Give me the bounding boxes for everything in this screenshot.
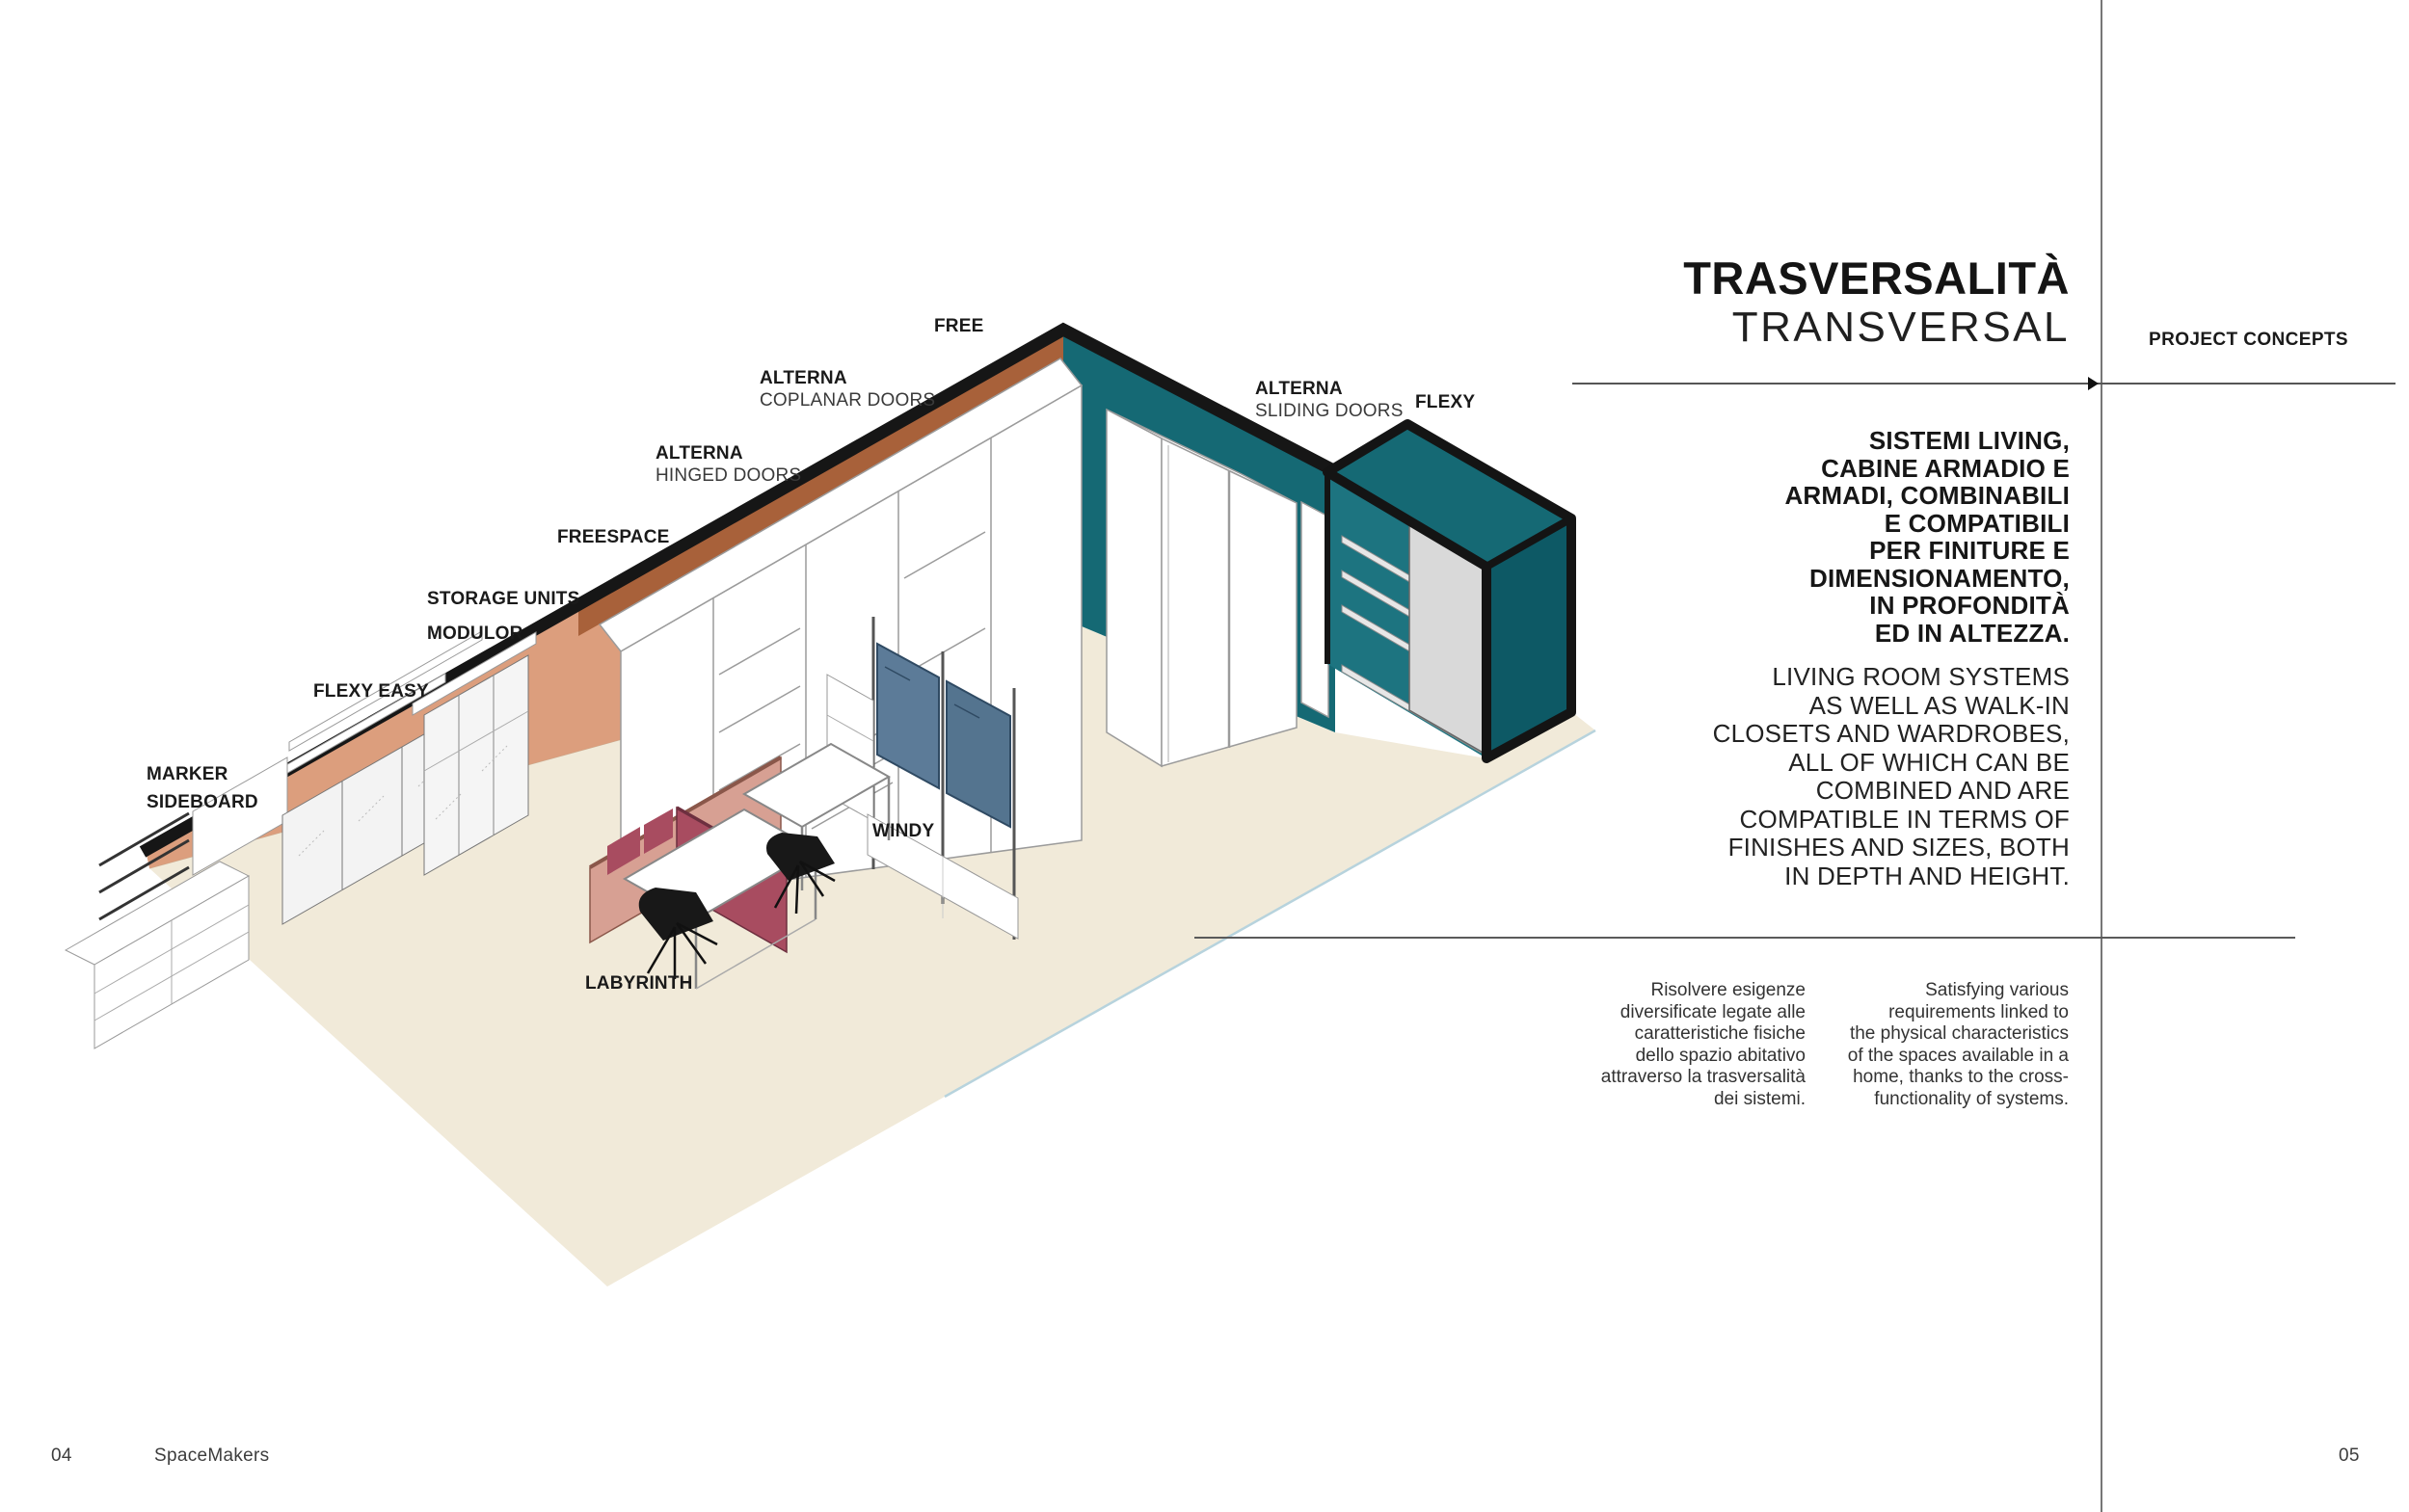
diagram-label-sideboard: SIDEBOARD [147, 791, 258, 813]
text-line: Satisfying various [1848, 980, 2069, 1002]
diagram-label-storage-units: STORAGE UNITS [427, 588, 580, 610]
text-line: DIMENSIONAMENTO, [1784, 565, 2070, 593]
catalog-spread: FREEALTERNACOPLANAR DOORSALTERNAHINGED D… [0, 0, 2409, 1512]
diagram-label-labyrinth: LABYRINTH [585, 972, 693, 995]
caption-english: Satisfying variousrequirements linked to… [1848, 980, 2069, 1110]
text-line: dello spazio abitativo [1601, 1046, 1806, 1068]
open-door-panel [1301, 502, 1328, 717]
caption-rule [1194, 937, 2295, 939]
diagram-label-name: ALTERNA [760, 367, 935, 389]
intro-italian: SISTEMI LIVING,CABINE ARMADIO EARMADI, C… [1784, 427, 2070, 647]
text-line: functionality of systems. [1848, 1089, 2069, 1111]
text-line: ARMADI, COMBINABILI [1784, 482, 2070, 510]
text-line: COMPATIBLE IN TERMS OF [1713, 806, 2070, 835]
header-rule [1572, 383, 2396, 385]
section-label: PROJECT CONCEPTS [2149, 330, 2348, 351]
caption-italian: Risolvere esigenzediversificate legate a… [1601, 980, 1806, 1110]
diagram-label-name: ALTERNA [656, 442, 801, 464]
diagram-label-alterna-sliding: ALTERNASLIDING DOORS [1255, 378, 1404, 422]
diagram-label-free: FREE [934, 315, 983, 337]
text-line: SISTEMI LIVING, [1784, 427, 2070, 455]
brand-name: SpaceMakers [154, 1446, 269, 1467]
text-line: caratteristiche fisiche [1601, 1023, 1806, 1046]
text-line: diversificate legate alle [1601, 1002, 1806, 1024]
diagram-label-name: MARKER [147, 763, 228, 785]
text-line: ED IN ALTEZZA. [1784, 620, 2070, 648]
diagram-label-alterna-coplanar: ALTERNACOPLANAR DOORS [760, 367, 935, 411]
diagram-label-name: FLEXY EASY [313, 680, 429, 703]
diagram-label-name: FREESPACE [557, 526, 670, 548]
diagram-label-flexy: FLEXY [1415, 391, 1475, 413]
diagram-label-name: STORAGE UNITS [427, 588, 580, 610]
text-line: IN PROFONDITÀ [1784, 592, 2070, 620]
flexy-walk-in-closet [1327, 424, 1571, 758]
diagram-label-alterna-hinged: ALTERNAHINGED DOORS [656, 442, 801, 487]
rule-arrow-icon [2088, 377, 2099, 390]
diagram-label-freespace: FREESPACE [557, 526, 670, 548]
text-line: attraverso la trasversalità [1601, 1067, 1806, 1089]
text-line: PER FINITURE E [1784, 537, 2070, 565]
title-english: TRANSVERSAL [1683, 304, 2070, 352]
text-line: FINISHES AND SIZES, BOTH [1713, 834, 2070, 862]
text-line: of the spaces available in a [1848, 1046, 2069, 1068]
diagram-label-name: ALTERNA [1255, 378, 1404, 400]
diagram-label-sub: SLIDING DOORS [1255, 400, 1404, 422]
text-line: CABINE ARMADIO E [1784, 455, 2070, 483]
text-line: the physical characteristics [1848, 1023, 2069, 1046]
page-number-right: 05 [2339, 1446, 2360, 1467]
text-line: requirements linked to [1848, 1002, 2069, 1024]
column-divider-line [2101, 0, 2102, 1512]
page-title: TRASVERSALITÀ TRANSVERSAL [1683, 252, 2070, 352]
text-line: AS WELL AS WALK-IN [1713, 692, 2070, 721]
diagram-label-flexy-easy: FLEXY EASY [313, 680, 429, 703]
page-number-left: 04 [51, 1446, 72, 1467]
text-line: home, thanks to the cross- [1848, 1067, 2069, 1089]
text-line: COMBINED AND ARE [1713, 777, 2070, 806]
diagram-label-sub: COPLANAR DOORS [760, 389, 935, 411]
intro-english: LIVING ROOM SYSTEMSAS WELL AS WALK-INCLO… [1713, 663, 2070, 890]
text-line: LIVING ROOM SYSTEMS [1713, 663, 2070, 692]
text-line: E COMPATIBILI [1784, 510, 2070, 538]
diagram-label-name: MODULOR [427, 623, 523, 645]
diagram-label-name: WINDY [872, 820, 934, 842]
diagram-label-sub: HINGED DOORS [656, 464, 801, 487]
diagram-label-windy: WINDY [872, 820, 934, 842]
diagram-label-modulor: MODULOR [427, 623, 523, 645]
diagram-label-name: FLEXY [1415, 391, 1475, 413]
diagram-label-marker: MARKER [147, 763, 228, 785]
text-line: dei sistemi. [1601, 1089, 1806, 1111]
text-line: IN DEPTH AND HEIGHT. [1713, 862, 2070, 891]
diagram-label-name: FREE [934, 315, 983, 337]
diagram-label-name: LABYRINTH [585, 972, 693, 995]
diagram-label-name: SIDEBOARD [147, 791, 258, 813]
text-line: CLOSETS AND WARDROBES, [1713, 720, 2070, 749]
text-line: Risolvere esigenze [1601, 980, 1806, 1002]
text-line: ALL OF WHICH CAN BE [1713, 749, 2070, 778]
title-italian: TRASVERSALITÀ [1683, 252, 2070, 304]
